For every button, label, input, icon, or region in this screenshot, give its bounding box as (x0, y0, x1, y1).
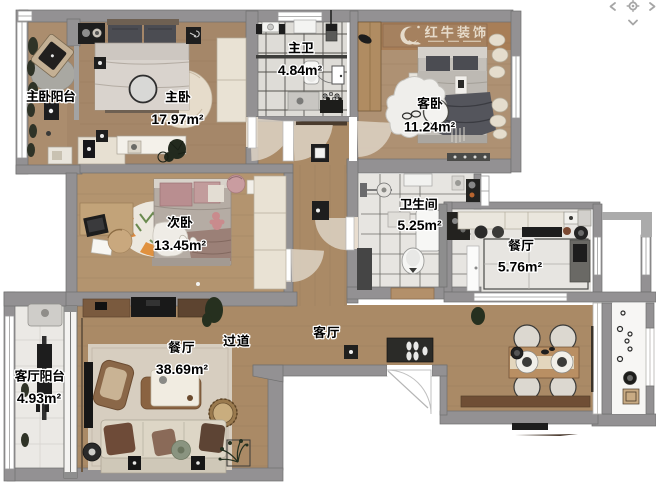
svg-text:5.76m²: 5.76m² (498, 259, 543, 275)
svg-text:38.69m²: 38.69m² (156, 361, 208, 377)
svg-text:13.45m²: 13.45m² (154, 237, 206, 253)
svg-text:4.84m²: 4.84m² (278, 62, 323, 78)
svg-text:5.25m²: 5.25m² (397, 217, 442, 233)
svg-text:4.93m²: 4.93m² (17, 390, 62, 406)
svg-text:17.97m²: 17.97m² (151, 111, 203, 127)
svg-text:11.24m²: 11.24m² (404, 119, 456, 135)
